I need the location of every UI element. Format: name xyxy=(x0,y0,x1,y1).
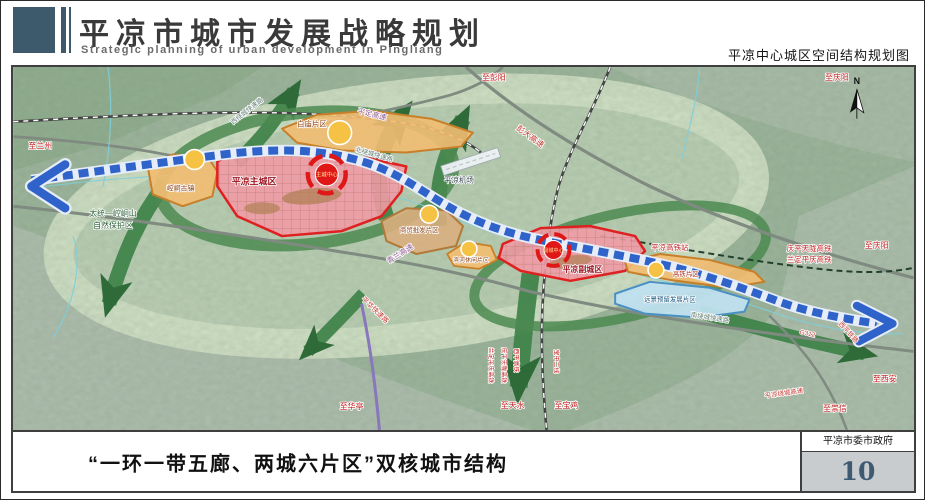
node-wholesale xyxy=(420,205,438,223)
map-label-to-qingyang-right: 至庆阳 xyxy=(865,240,889,250)
page: 平凉市城市发展战略规划 Strategic planning of urban … xyxy=(0,0,925,500)
map-label-to-baoji: 至宝鸡 xyxy=(555,400,579,410)
planning-map: N 至兰州太统—崆峒山自然保护区崆峒古镇白庙片区平凉主城区主城中心商贸批发片区滨… xyxy=(13,67,914,430)
footer-caption: “一环一带五廊、两城六片区”双核城市结构 xyxy=(88,447,508,476)
map-subtitle: 平凉中心城区空间结构规划图 xyxy=(728,45,910,64)
map-label-to-chongxin: 至崇信 xyxy=(823,403,847,413)
map-label-to-qingyang-top: 至庆阳 xyxy=(825,72,849,82)
page-number: 10 xyxy=(802,452,914,491)
map-label-zone-sub-city: 平凉副城区 xyxy=(563,264,603,274)
content-frame: N 至兰州太统—崆峒山自然保护区崆峒古镇白庙片区平凉主城区主城中心商贸批发片区滨… xyxy=(11,65,916,493)
north-arrow-label: N xyxy=(854,76,860,86)
map-label-rail-xiping-v: 西平高铁 xyxy=(513,348,521,372)
header-accent-bar-thin xyxy=(69,7,71,53)
map-label-main-center: 主城中心 xyxy=(316,170,338,178)
node-hsr xyxy=(648,262,664,278)
map-label-to-xian: 至西安 xyxy=(873,373,897,383)
map-label-zone-leisure: 滨河休闲片区 xyxy=(453,256,489,264)
header-accent-bar xyxy=(61,7,66,53)
map-label-hsr-line-2: 兰定平庆高铁 xyxy=(787,254,832,264)
map-canvas: N 至兰州太统—崆峒山自然保护区崆峒古镇白庙片区平凉主城区主城中心商贸批发片区滨… xyxy=(13,67,914,430)
map-label-to-tianshui: 至天水 xyxy=(501,400,525,410)
map-label-zone-wholesale: 商贸批发片区 xyxy=(400,225,439,234)
map-label-rail-baozhong-v: 宝中二线 xyxy=(552,349,560,373)
map-label-rail-qingping-v: 庆平天陇高铁 xyxy=(500,347,508,383)
map-label-hsr-line-1: 庆平天陇高铁 xyxy=(787,243,832,253)
map-label-nature-reserve-2: 自然保护区 xyxy=(93,220,133,230)
stamp-box: 平凉市委市政府 10 xyxy=(800,432,914,491)
map-label-zone-baimiao: 白庙片区 xyxy=(297,119,327,129)
node-baimiao xyxy=(328,121,352,145)
node-leisure xyxy=(461,241,477,257)
map-label-hsr-station: 平凉高铁站 xyxy=(651,242,689,252)
map-label-zone-hsr: 高铁片区 xyxy=(673,269,699,278)
map-label-zone-reserved: 远景预留发展片区 xyxy=(644,295,696,304)
header-accent-square xyxy=(13,7,55,53)
node-kongtong xyxy=(185,150,205,170)
map-label-nature-reserve-1: 太统—崆峒山 xyxy=(89,208,137,218)
page-title-english: Strategic planning of urban development … xyxy=(81,44,444,56)
built-patch-2 xyxy=(244,202,280,214)
map-label-to-pengyang: 至彭阳 xyxy=(482,72,506,82)
map-label-airport: 平凉机场 xyxy=(444,174,474,184)
footer-strip: “一环一带五廊、两城六片区”双核城市结构 平凉市委市政府 10 xyxy=(13,430,914,491)
organization-label: 平凉市委市政府 xyxy=(802,432,914,452)
map-label-to-huating: 至华亭 xyxy=(340,401,364,411)
map-label-sub-center: 副城中心 xyxy=(544,247,564,254)
map-label-zone-main-city: 平凉主城区 xyxy=(232,175,277,186)
map-label-rail-landing-v: 兰定平庆高铁 xyxy=(487,347,495,383)
map-label-zone-kongtong-town: 崆峒古镇 xyxy=(167,183,195,192)
map-label-to-lanzhou: 至兰州 xyxy=(28,141,52,151)
